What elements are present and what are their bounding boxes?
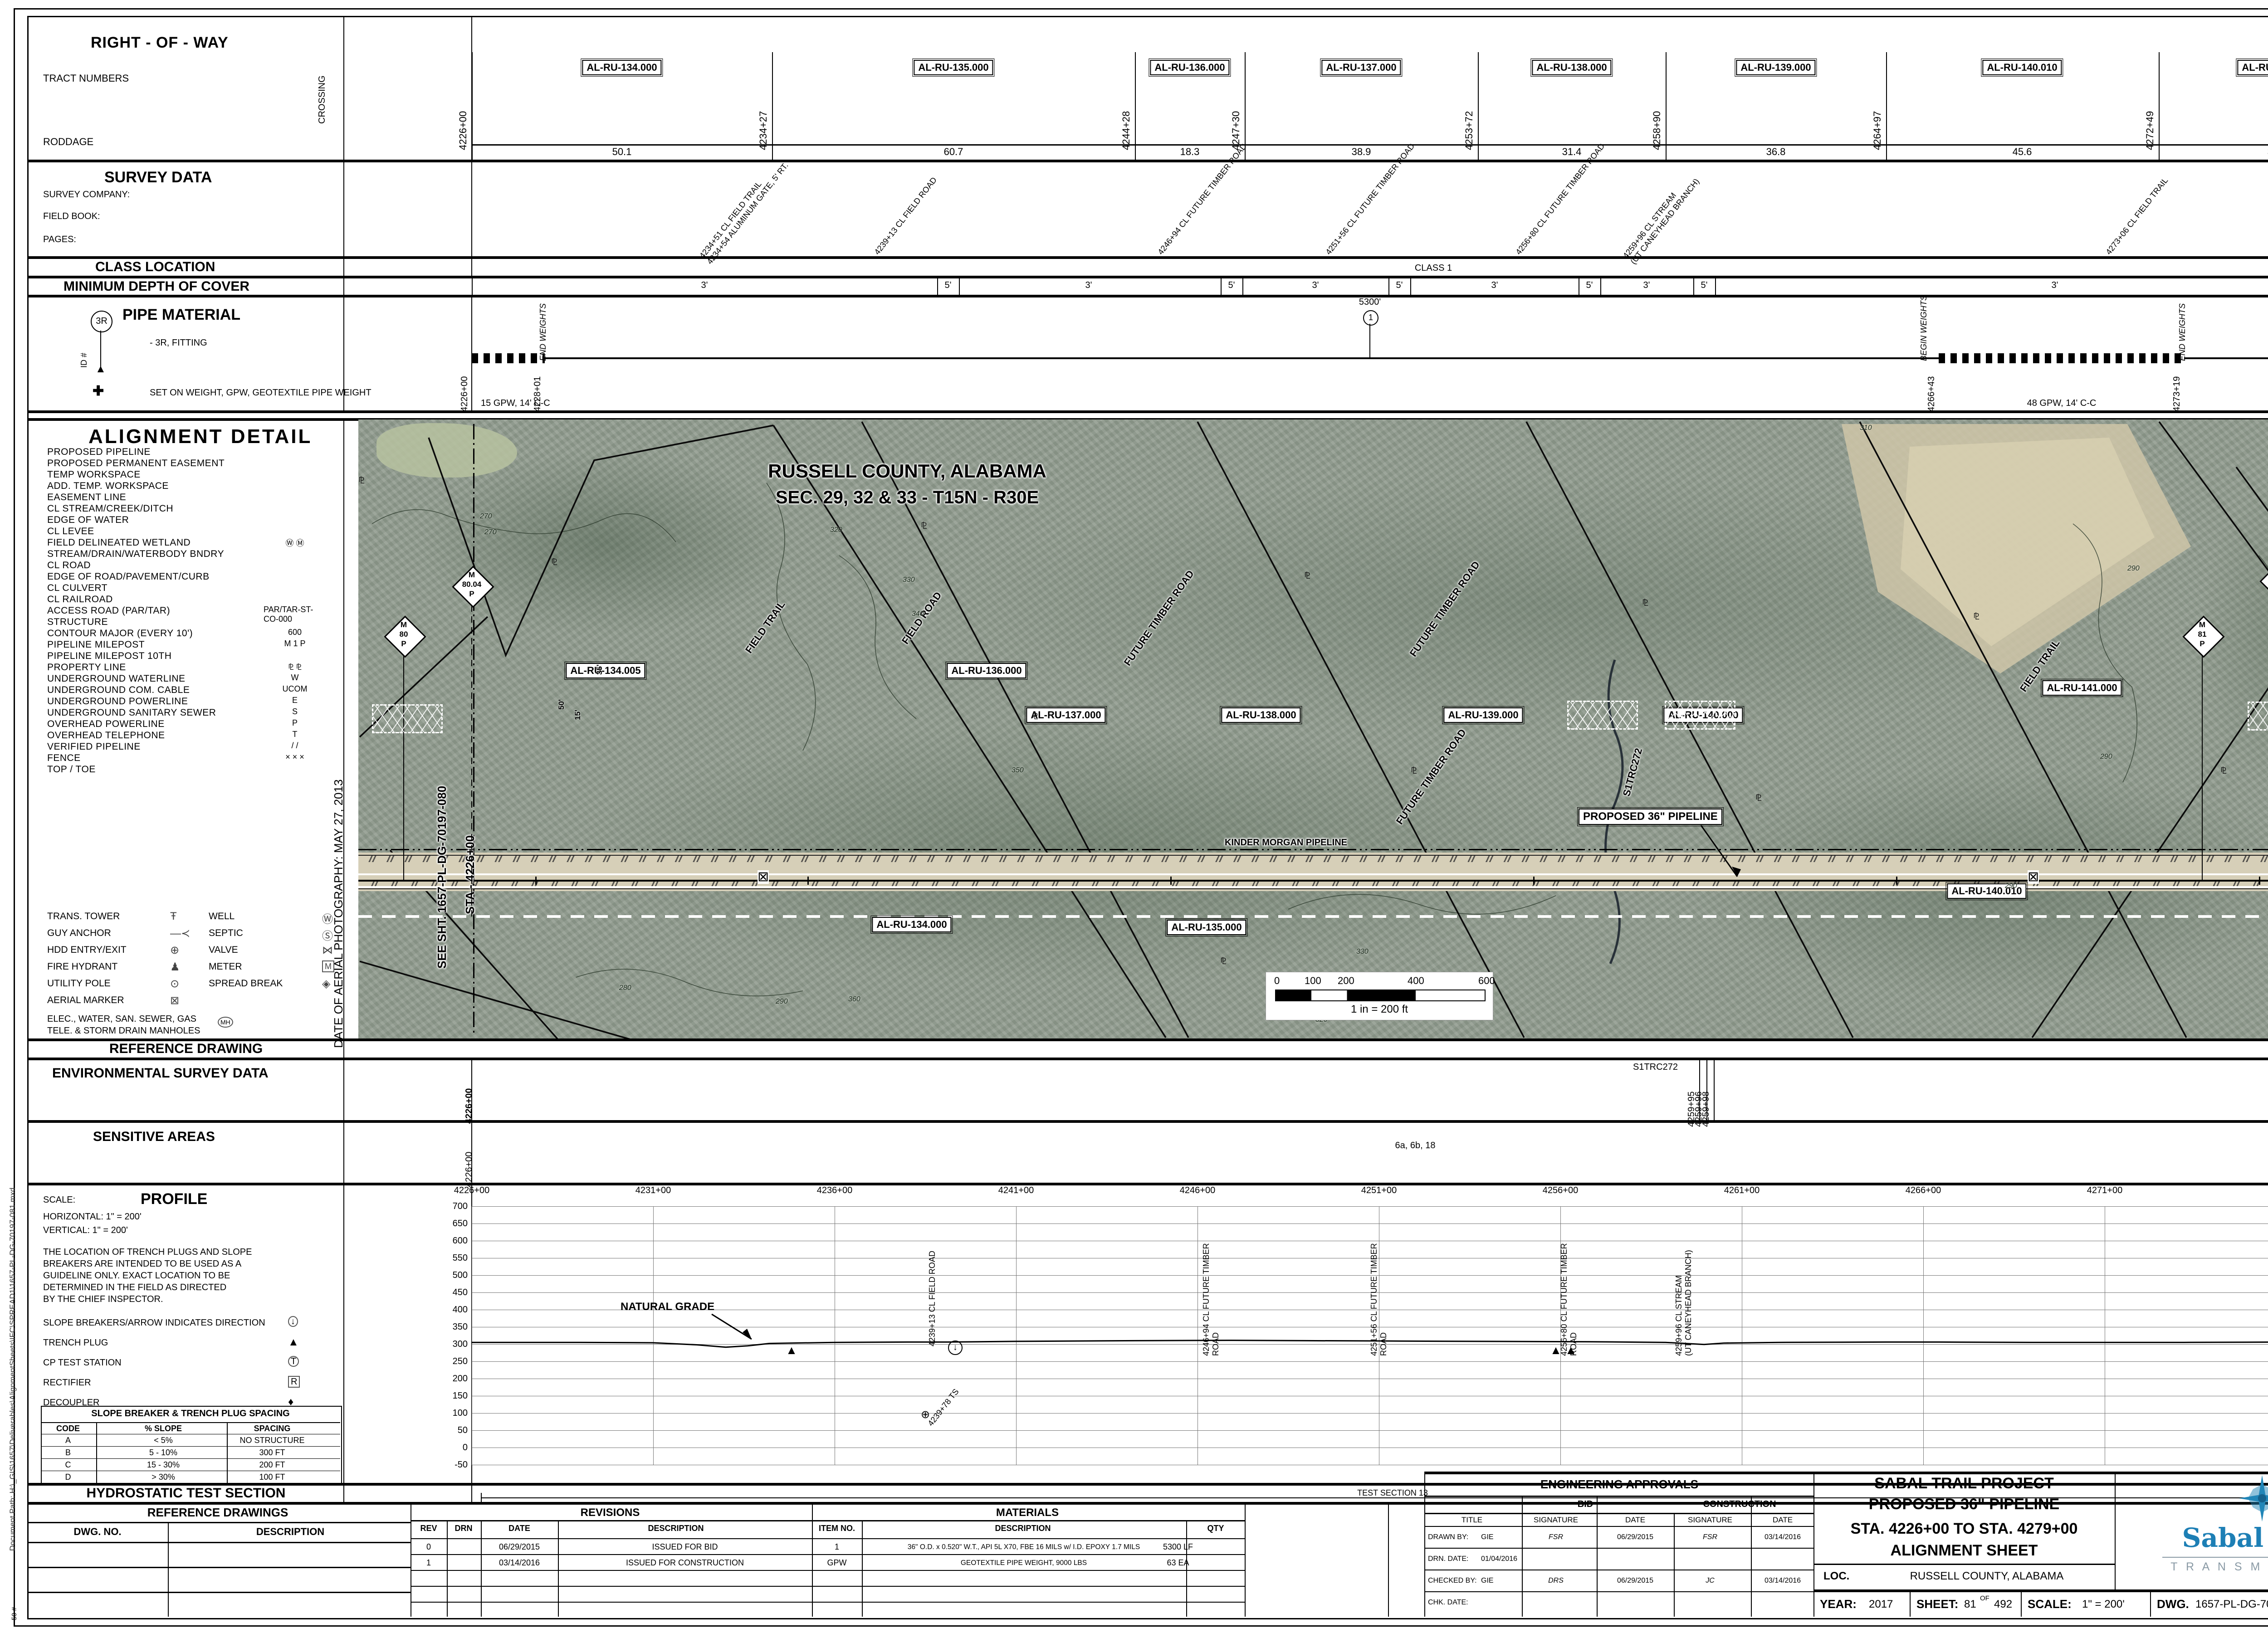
sens-left-station: 4226+00 <box>464 1152 474 1187</box>
legend-item: CL CULVERT <box>45 582 336 593</box>
pipe-left-note: 15 GPW, 14' C-C <box>481 398 550 409</box>
legend-item: VERIFIED PIPELINE / / <box>45 741 336 752</box>
legend-manholes-label1: ELEC., WATER, SAN. SEWER, GAS <box>47 1014 196 1024</box>
spacing-row: B 5 - 10% 300 FT <box>41 1446 340 1458</box>
pipe-fitting-label: - 3R, FITTING <box>150 338 207 348</box>
map-scalebar: 0 100 200 400 600 1 in = 200 ft <box>1266 972 1493 1020</box>
revision-row <box>411 1586 812 1603</box>
revisions-h1: DRN <box>455 1524 473 1533</box>
spacing-row: D > 30% 100 FT <box>41 1471 340 1483</box>
material-row <box>812 1570 1245 1587</box>
pipe-station: 4273+19 <box>2172 376 2182 412</box>
profile-note: DETERMINED IN THE FIELD AS DIRECTED <box>43 1282 226 1293</box>
refdrawings-title: REFERENCE DRAWINGS <box>147 1506 288 1520</box>
sensitive-value: 6a, 6b, 18 <box>1395 1141 1436 1151</box>
approval-row: DRN. DATE: 01/04/2016 <box>1424 1548 1813 1570</box>
roddage-value: 38.9 <box>1352 146 1371 158</box>
tract-number-box: AL-RU-135.000 <box>914 60 993 75</box>
spacing-h1: % SLOPE <box>145 1424 182 1433</box>
alignment-sheet: RIGHT - OF - WAY CROSSING TRACT NUMBERS … <box>0 0 2268 1633</box>
tb-year: 2017 <box>1869 1598 1893 1611</box>
spacing-row: A < 5% NO STRUCTURE <box>41 1434 340 1446</box>
pipe-center-length: 5300' <box>1359 297 1381 307</box>
revisions-h2: DATE <box>508 1524 530 1533</box>
spacing-title: SLOPE BREAKER & TRENCH PLUG SPACING <box>91 1409 289 1419</box>
profile-note: BY THE CHIEF INSPECTOR. <box>43 1294 163 1305</box>
approvals-sig-h: SIGNATURE <box>1534 1516 1578 1525</box>
tract-number-box: AL-RU-139.000 <box>1736 60 1815 75</box>
pipe-right-end-weights: END WEIGHTS <box>2178 303 2187 361</box>
tb-scale: 1" = 200' <box>2082 1598 2125 1611</box>
pipe-center-callout: 1 <box>1363 310 1378 326</box>
pipe-3r-symbol: 3R <box>91 311 112 332</box>
class-location-title: CLASS LOCATION <box>95 259 215 275</box>
pipe-weights-right <box>1939 353 2184 363</box>
depth-value: 3' <box>1312 280 1319 291</box>
profile-scale-label: SCALE: <box>43 1195 75 1205</box>
tract-number-box: AL-RU-138.000 <box>1532 60 1611 75</box>
approval-row: DRAWN BY: GIE FSR 06/29/2015 FSR 03/14/2… <box>1424 1526 1813 1549</box>
document-path: Document Path: H:\_GIS\1657\Deliverables… <box>8 1188 17 1551</box>
depth-value: 3' <box>701 280 708 291</box>
pipe-right-note: 48 GPW, 14' C-C <box>2027 398 2097 409</box>
tb-project: SABAL TRAIL PROJECT <box>1874 1475 2053 1492</box>
env-group-label: S1TRC272 <box>1633 1062 1678 1072</box>
hydro-value: TEST SECTION 13 <box>1357 1488 1428 1498</box>
depth-cell-divider <box>1693 277 1694 295</box>
legend-manholes-label2: TELE. & STORM DRAIN MANHOLES <box>47 1026 200 1036</box>
depth-value: 5' <box>1586 280 1593 291</box>
env-left-station: 4226+00 <box>464 1088 474 1124</box>
depth-value: 5' <box>1701 280 1708 291</box>
legend-item: STREAM/DRAIN/WATERBODY BNDRY <box>45 548 336 559</box>
legend-item: ACCESS ROAD (PAR/TAR) PAR/TAR-ST-CO-000 <box>45 604 336 616</box>
legend-item: ADD. TEMP. WORKSPACE <box>45 480 336 491</box>
legend-item: FIELD DELINEATED WETLAND Ⓦ Ⓜ <box>45 536 336 548</box>
legend-item: PROPERTY LINE ⅊ ⅊ <box>45 661 336 673</box>
profile-note: THE LOCATION OF TRENCH PLUGS AND SLOPE <box>43 1247 252 1258</box>
legend-item: UNDERGROUND POWERLINE E <box>45 695 336 707</box>
pipe-gpw-note: SET ON WEIGHT, GPW, GEOTEXTILE PIPE WEIG… <box>150 388 371 398</box>
profile-legend-item: SLOPE BREAKERS/ARROW INDICATES DIRECTION… <box>43 1315 324 1333</box>
survey-company-label: SURVEY COMPANY: <box>43 190 130 200</box>
sensitive-title: SENSITIVE AREAS <box>93 1129 215 1145</box>
legend-item: PIPELINE MILEPOST M 1 P <box>45 639 336 650</box>
tb-year-label: YEAR: <box>1820 1597 1857 1611</box>
pipe-left-end-weights: END WEIGHTS <box>538 303 548 361</box>
depth-cell-divider <box>959 277 960 295</box>
tract-number-box: AL-RU-140.010 <box>1982 60 2062 75</box>
profile-title: PROFILE <box>141 1190 207 1208</box>
depth-value: 3' <box>2052 280 2058 291</box>
roddage-value: 45.6 <box>2013 146 2032 158</box>
row-roddage-label: RODDAGE <box>43 136 93 148</box>
tb-dwg: 1657-PL-DG-70197-081 <box>2195 1598 2268 1611</box>
profile-vscale: VERTICAL: 1" = 200' <box>43 1225 128 1236</box>
row-tract-numbers-label: TRACT NUMBERS <box>43 73 129 84</box>
depth-value: 3' <box>1643 280 1650 291</box>
km-pipeline-label: KINDER MORGAN PIPELINE <box>1225 838 1347 848</box>
tract-number-box: AL-RU-134.000 <box>582 60 661 75</box>
approvals-date-h: DATE <box>1625 1516 1645 1525</box>
materials-h0: ITEM NO. <box>819 1524 855 1533</box>
depth-cell-divider <box>1221 277 1222 295</box>
approvals-sig-h2: SIGNATURE <box>1688 1516 1732 1525</box>
roddage-value: 36.8 <box>1766 146 1786 158</box>
legend-item: EDGE OF WATER <box>45 514 336 525</box>
tb-scale-label: SCALE: <box>2028 1597 2072 1611</box>
depth-value: 3' <box>1491 280 1498 291</box>
row-title: RIGHT - OF - WAY <box>91 34 229 52</box>
trench-plug-icon: ▲ <box>786 1343 797 1357</box>
roddage-value: 18.3 <box>1180 146 1200 158</box>
survey-title: SURVEY DATA <box>104 169 212 186</box>
legend-item: CL LEVEE <box>45 525 336 536</box>
tract-number-box: AL-RU-136.000 <box>1150 60 1229 75</box>
legend-item: TOP / TOE <box>45 763 336 775</box>
legend-item: OVERHEAD TELEPHONE T <box>45 729 336 741</box>
logo-sub: T R A N S M I S S I O N <box>2170 1560 2268 1574</box>
depth-cell-divider <box>472 277 473 295</box>
natural-grade-label: NATURAL GRADE <box>621 1301 714 1313</box>
legend-item: TEMP WORKSPACE <box>45 468 336 480</box>
legend-item: UNDERGROUND COM. CABLE UCOM <box>45 684 336 695</box>
roddage-value: 50.1 <box>612 146 632 158</box>
roddage-value: 60.7 <box>944 146 963 158</box>
tract-number-box: AL-RU-137.000 <box>1321 60 1401 75</box>
spacing-h2: SPACING <box>254 1424 291 1433</box>
depth-cell-divider <box>1600 277 1601 295</box>
legend-item: CONTOUR MAJOR (EVERY 10') 600 <box>45 627 336 639</box>
legend-symbol-row: AERIAL MARKER ⊠ <box>45 993 336 1009</box>
legend-item: PIPELINE MILEPOST 10TH <box>45 650 336 661</box>
depth-cell-divider <box>937 277 938 295</box>
pipe-trenchplug-glyph: ▲ <box>95 363 106 375</box>
legend-symbol-row: GUY ANCHOR —≺ SEPTIC Ⓢ <box>45 926 336 942</box>
pipe-right-begin-weights: BEGIN WEIGHTS <box>1919 295 1929 361</box>
spacing-row: C 15 - 30% 200 FT <box>41 1458 340 1471</box>
profile-note: BREAKERS ARE INTENDED TO BE USED AS A <box>43 1259 241 1269</box>
tb-sheet-label: SHEET: <box>1916 1597 1958 1611</box>
profile-legend-item: CP TEST STATION T <box>43 1355 324 1373</box>
row-crossing-label: CROSSING <box>317 75 327 124</box>
refdrawings-h1: DESCRIPTION <box>256 1526 324 1538</box>
spacing-h0: CODE <box>56 1424 80 1433</box>
approval-row: CHK. DATE: <box>1424 1591 1813 1614</box>
profile-hscale: HORIZONTAL: 1" = 200' <box>43 1212 142 1222</box>
aerial-photo-date: DATE OF AERIAL PHOTOGRAPHY: MAY 27, 2013 <box>332 780 346 1048</box>
legend-item: OVERHEAD POWERLINE P <box>45 718 336 729</box>
approvals-date-h2: DATE <box>1773 1516 1793 1525</box>
aerial-map: ⊠ ⊠ SEE SHT. 1657-PL-DG-70197-080 STA - … <box>358 419 2268 1038</box>
approvals-construction: CONSTRUCTION <box>1703 1499 1776 1510</box>
profile-note: GUIDELINE ONLY. EXACT LOCATION TO BE <box>43 1271 230 1281</box>
legend-item: CL STREAM/CREEK/DITCH <box>45 502 336 514</box>
tb-dwg-label: DWG. <box>2157 1597 2189 1611</box>
revision-row: 0 06/29/2015 ISSUED FOR BID <box>411 1538 812 1555</box>
profile-legend-item: TRENCH PLUG ▲ <box>43 1335 324 1353</box>
depth-cell-divider <box>1579 277 1579 295</box>
legend-symbol-row: HDD ENTRY/EXIT ⊕ VALVE ⋈ <box>45 943 336 959</box>
legend-symbol-row: UTILITY POLE ⊙ SPREAD BREAK ◈ <box>45 976 336 993</box>
legend-item: STRUCTURE <box>45 616 336 627</box>
material-row: 1 36" O.D. x 0.520" W.T., API 5L X70, FB… <box>812 1538 1245 1555</box>
tb-sheet-no: 81 <box>1964 1598 1976 1611</box>
legend-symbol-row: FIRE HYDRANT ♟ METER M <box>45 960 336 976</box>
tb-line3: STA. 4226+00 TO STA. 4279+00 <box>1851 1520 2078 1538</box>
hydro-title: HYDROSTATIC TEST SECTION <box>87 1486 286 1501</box>
legend-item: CL ROAD <box>45 559 336 570</box>
revision-row <box>411 1570 812 1587</box>
legend-item: PROPOSED PIPELINE <box>45 446 336 457</box>
tb-sheet-total: 492 <box>1994 1598 2012 1611</box>
tb-line2: PROPOSED 36" PIPELINE <box>1869 1496 2059 1513</box>
legend-title: ALIGNMENT DETAIL <box>88 425 312 448</box>
tb-loc-label: LOC. <box>1823 1570 1849 1583</box>
materials-h1: DESCRIPTION <box>995 1524 1051 1533</box>
logo-compass-icon <box>2237 1473 2268 1523</box>
materials-title: MATERIALS <box>996 1506 1059 1519</box>
material-row: GPW GEOTEXTILE PIPE WEIGHT, 9000 LBS 63 … <box>812 1554 1245 1571</box>
sabal-trail-logo: Sabal Trail T R A N S M I S S I O N SM <box>2115 1472 2268 1589</box>
legend-item: FENCE × × × <box>45 752 336 763</box>
logo-name: Sabal Trail <box>2182 1522 2268 1553</box>
tb-line4: ALIGNMENT SHEET <box>1891 1542 2038 1560</box>
legend-item: UNDERGROUND WATERLINE W <box>45 673 336 684</box>
depth-value: 5' <box>1396 280 1403 291</box>
pipe-title: PIPE MATERIAL <box>122 306 240 324</box>
pipe-station: 4266+43 <box>1926 376 1937 412</box>
corner-note: 50 # <box>10 1607 18 1620</box>
revision-row: 1 03/14/2016 ISSUED FOR CONSTRUCTION <box>411 1554 812 1571</box>
depth-cell-divider <box>1715 277 1716 295</box>
approval-row: CHECKED BY: GIE DRS 06/29/2015 JC 03/14/… <box>1424 1570 1813 1592</box>
legend-item: EDGE OF ROAD/PAVEMENT/CURB <box>45 570 336 582</box>
survey-pages-label: PAGES: <box>43 234 76 245</box>
tb-sheet-of: OF <box>1980 1594 1989 1602</box>
legend-item: UNDERGROUND SANITARY SEWER S <box>45 707 336 718</box>
depth-value: 3' <box>1085 280 1092 291</box>
manhole-icon: MH <box>218 1017 233 1028</box>
class-location-value: CLASS 1 <box>1415 263 1452 273</box>
depth-title: MINIMUM DEPTH OF COVER <box>64 279 249 294</box>
depth-cell-divider <box>1388 277 1389 295</box>
revisions-h3: DESCRIPTION <box>648 1524 704 1533</box>
approvals-title-h: TITLE <box>1461 1516 1482 1525</box>
material-row <box>812 1602 1245 1619</box>
revision-row <box>411 1602 812 1619</box>
depth-cell-divider <box>1242 277 1243 295</box>
materials-h2: QTY <box>1207 1524 1224 1533</box>
tract-number-box: AL-RU-141.000 <box>2237 60 2268 75</box>
approvals-title: ENGINEERING APPROVALS <box>1540 1477 1698 1492</box>
survey-fieldbook-label: FIELD BOOK: <box>43 211 100 222</box>
pipe-station: 4226+00 <box>459 376 470 412</box>
depth-value: 5' <box>1228 280 1235 291</box>
pipe-weights-left <box>472 353 545 363</box>
tb-loc: RUSSELL COUNTY, ALABAMA <box>1910 1570 2064 1583</box>
legend-item: PROPOSED PERMANENT EASEMENT <box>45 457 336 468</box>
material-row <box>812 1586 1245 1603</box>
legend-symbol-row: TRANS. TOWER Ŧ WELL Ⓦ <box>45 909 336 926</box>
legend-item: CL RAILROAD <box>45 593 336 604</box>
roddage-value: 31.4 <box>1562 146 1582 158</box>
pipe-id-label: ID # <box>79 353 89 368</box>
revisions-title: REVISIONS <box>581 1506 640 1519</box>
slope-breaker-icon: ↓ <box>948 1341 963 1355</box>
refdraw-title: REFERENCE DRAWING <box>109 1041 263 1057</box>
legend-item: EASEMENT LINE <box>45 491 336 502</box>
refdrawings-h0: DWG. NO. <box>73 1526 121 1538</box>
depth-cell-divider <box>1410 277 1411 295</box>
depth-value: 5' <box>945 280 952 291</box>
pipe-gpw-glyph: ✚ <box>93 383 104 399</box>
env-title: ENVIRONMENTAL SURVEY DATA <box>52 1066 269 1081</box>
revisions-h0: REV <box>420 1524 437 1533</box>
profile-legend-item: RECTIFIER R <box>43 1375 324 1393</box>
approvals-bid: BID <box>1578 1499 1593 1510</box>
